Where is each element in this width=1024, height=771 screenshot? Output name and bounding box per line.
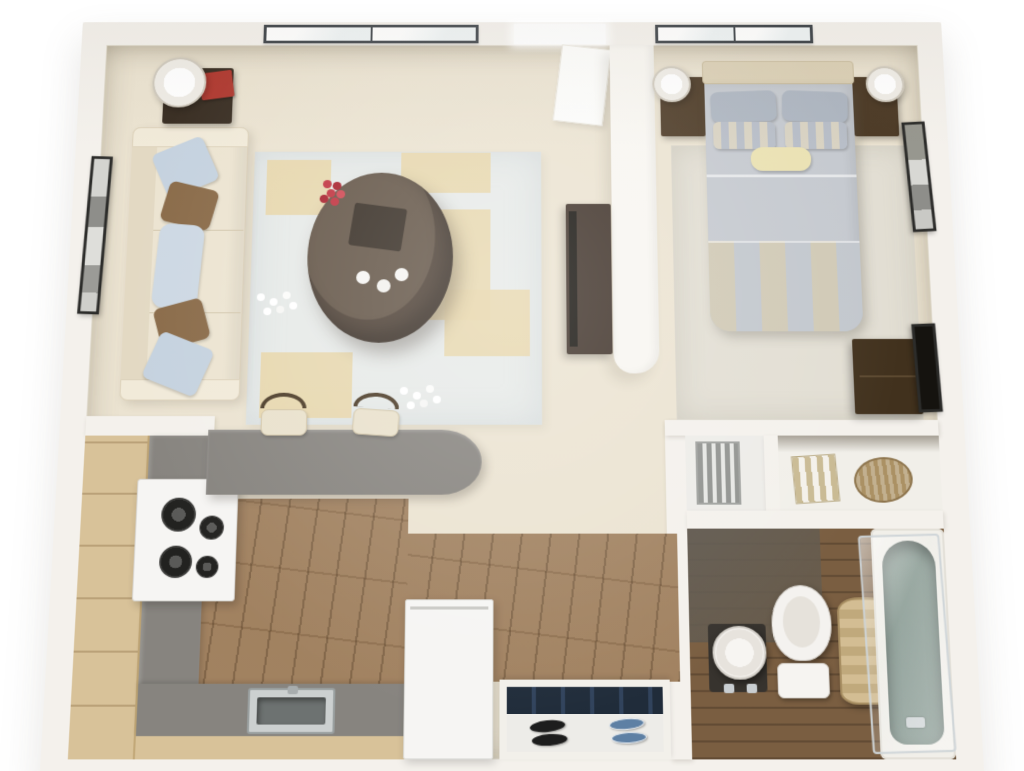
entry-shoe-closet (499, 679, 671, 759)
kitchen-sink (247, 687, 336, 733)
table-tray (348, 202, 407, 251)
bed-pillow-striped (784, 121, 847, 148)
bedside-lamp-left (652, 66, 691, 102)
kitchen-cabinet-face (135, 736, 406, 759)
lumbar-pillow-blue (151, 222, 206, 309)
skylight-window-bedroom (655, 24, 813, 43)
stove-burner (195, 555, 218, 577)
closet-interior (507, 686, 663, 713)
shower-glass-screen (858, 533, 957, 754)
breakfast-bar-counter (206, 429, 482, 494)
apartment-plan (39, 22, 985, 771)
sink-leg (724, 683, 735, 692)
accent-pillow (751, 147, 812, 171)
refrigerator-door-seam (410, 606, 488, 609)
double-bed (704, 84, 863, 331)
window-pane (372, 27, 476, 40)
window-pane (735, 27, 810, 40)
closet-bottom-wall (687, 510, 944, 528)
wall-living-kitchen (85, 416, 215, 436)
toilet (768, 585, 837, 711)
open-door-panel (553, 44, 612, 126)
skylight-window-living (263, 24, 478, 43)
sofa (119, 127, 249, 400)
red-flowers (323, 180, 332, 188)
bar-stool (347, 390, 405, 438)
window-pane (266, 27, 372, 40)
bed-pillow (710, 90, 778, 123)
doorway-opening (514, 23, 606, 43)
bed-pillow-striped (713, 121, 776, 148)
stool-backrest (353, 391, 400, 410)
stool-seat (352, 407, 400, 436)
dresser-drawer-seam (860, 375, 916, 377)
tv-screen (569, 211, 578, 346)
range-stove (132, 478, 239, 601)
sink-leg (747, 683, 758, 692)
stool-backrest (260, 392, 307, 408)
toilet-bowl (770, 585, 832, 661)
toilet-seat (782, 596, 821, 647)
mirror-glass (914, 326, 939, 409)
hall-closet-shelves (778, 435, 943, 510)
tv-console (566, 203, 613, 353)
partition-wall (610, 45, 660, 373)
floor-plan-scene (0, 0, 1024, 771)
bar-stool (256, 392, 311, 437)
shelf-shadow (778, 435, 940, 452)
sink-basin (256, 697, 325, 724)
foot-blanket-striped (708, 240, 863, 330)
sink-faucet (288, 685, 299, 693)
hall-closet-small (685, 435, 766, 510)
wall-bathroom-top (665, 419, 939, 435)
bed-headboard (702, 61, 854, 84)
refrigerator (403, 599, 493, 759)
stove-burner (161, 497, 197, 531)
white-cups (356, 270, 370, 283)
stove-burner (159, 545, 193, 577)
duvet-fold (707, 174, 857, 177)
wicker-basket (851, 454, 916, 505)
toilet-tank (777, 663, 830, 698)
rug-accent-patch (265, 159, 331, 214)
bed-pillow (782, 90, 848, 123)
striped-towels (791, 453, 840, 503)
stool-seat (260, 409, 307, 435)
rug-flower-dots (400, 386, 408, 394)
stove-burner (199, 515, 224, 539)
slatted-unit (695, 441, 741, 504)
window-pane (658, 27, 735, 40)
rug-flower-dots (257, 293, 265, 301)
